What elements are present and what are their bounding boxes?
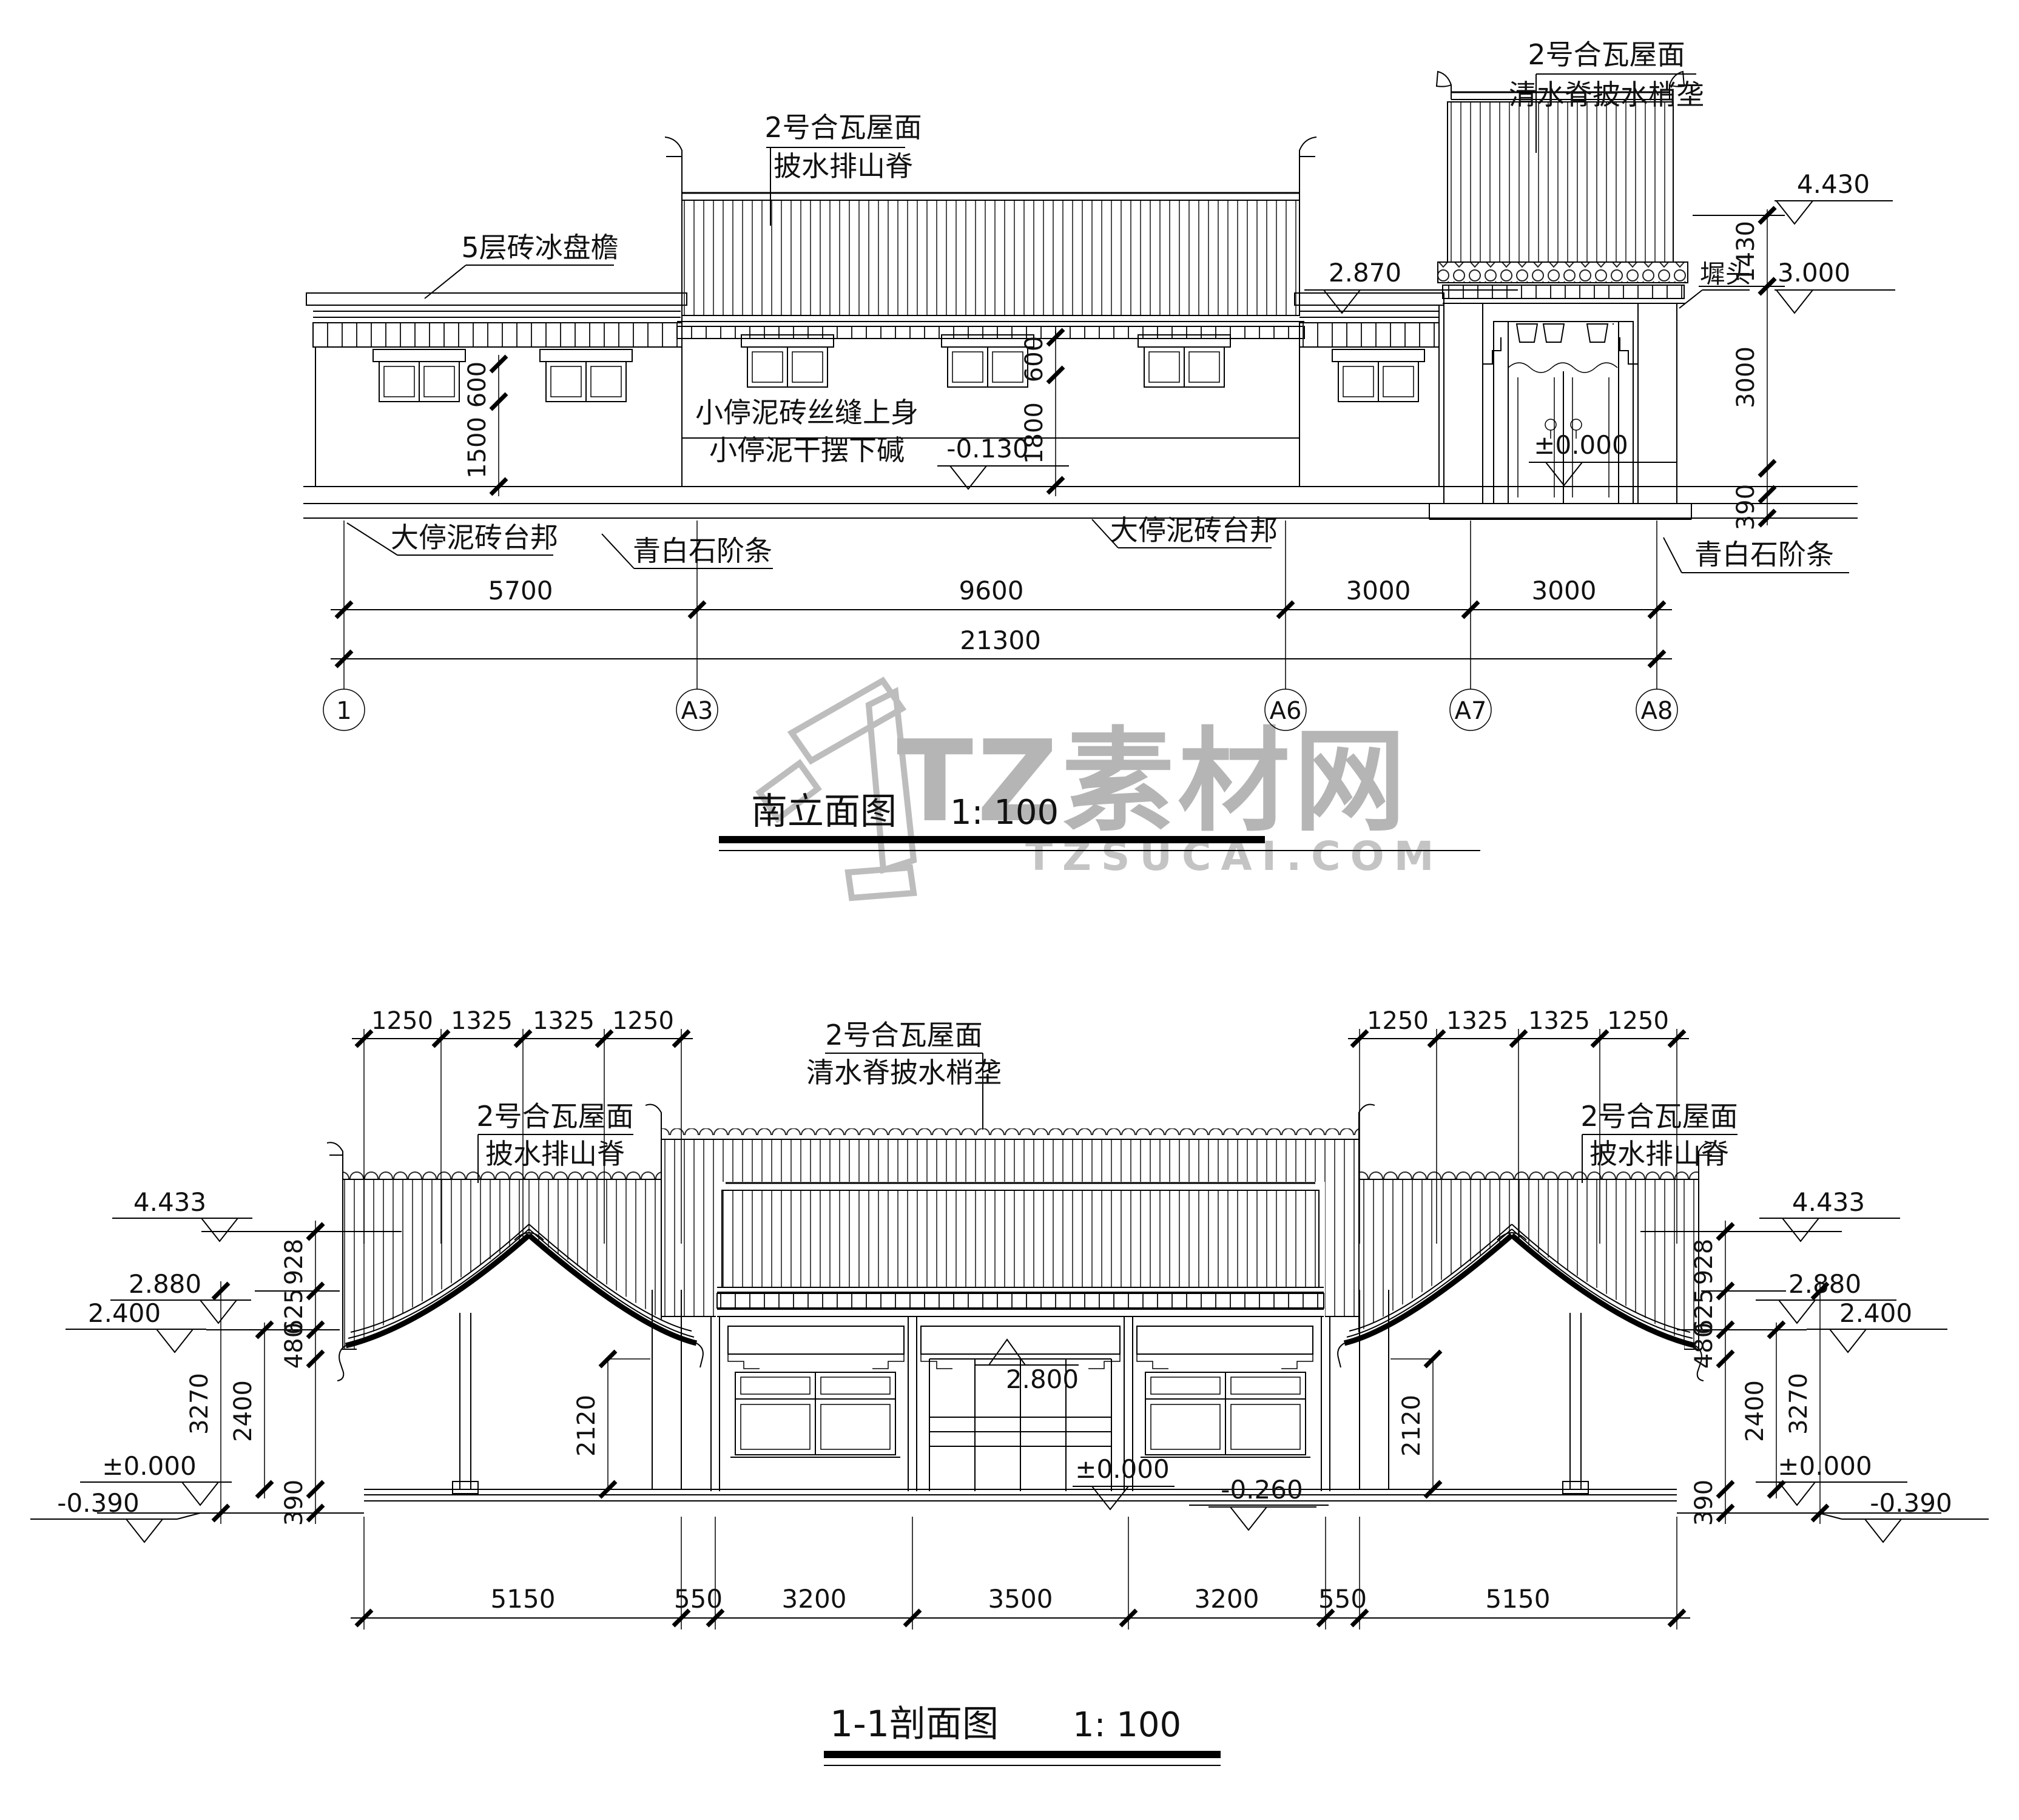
elevation-right-wall [1295, 293, 1444, 487]
dim-5700: 5700 [488, 576, 553, 605]
level-l-4433: 4.433 [133, 1187, 206, 1217]
section-center-hall [711, 1182, 1330, 1491]
cad-drawing-canvas: TZ素材网 TZSUCAI.COM 600 1500 [0, 0, 2019, 1820]
vdim-l-390: 390 [280, 1480, 308, 1526]
dim-tl-1250a: 1250 [371, 1007, 433, 1035]
dim-b-5150a: 5150 [491, 1584, 556, 1614]
label-wall-lower: 小停泥干摆下碱 [709, 434, 905, 467]
level-r-minus390: -0.390 [1870, 1488, 1952, 1518]
dim-b-3500: 3500 [988, 1584, 1053, 1614]
label-roof-center-line1: 2号合瓦屋面 [764, 111, 922, 144]
level-l-2400: 2.400 [88, 1298, 161, 1328]
vdim-l-3270: 3270 [186, 1373, 214, 1435]
dim-tr-1325b: 1325 [1528, 1007, 1590, 1035]
dim-tr-1250a: 1250 [1367, 1007, 1429, 1035]
level-c-zero: ±0.000 [1075, 1454, 1169, 1484]
dim-tr-1325a: 1325 [1446, 1007, 1508, 1035]
watermark: TZ素材网 TZSUCAI.COM [760, 681, 1443, 898]
vdim-mid-600: 600 [1020, 336, 1048, 382]
grid-bubble-1: 1 [336, 697, 351, 725]
section-title-block: 1-1剖面图 1: 100 [824, 1703, 1221, 1765]
section-bottom-dims: 5150 550 3200 3500 3200 550 5150 [351, 1517, 1690, 1630]
vdim-r-928: 928 [1690, 1239, 1718, 1285]
vdim-r-2400: 2400 [1741, 1380, 1769, 1442]
dim-3000-b: 3000 [1532, 576, 1597, 605]
dim-b-550b: 550 [1318, 1584, 1367, 1614]
grid-bubble-a3: A3 [681, 697, 713, 725]
level-l-2880: 2.880 [129, 1269, 201, 1299]
level-l-minus390: -0.390 [57, 1488, 139, 1518]
dim-tl-1325a: 1325 [451, 1007, 513, 1035]
vdim-l-480: 480 [280, 1323, 308, 1369]
vdim-win-600: 600 [463, 362, 491, 408]
vdim-r-480: 480 [1690, 1323, 1718, 1369]
dim-tl-1250b: 1250 [612, 1007, 674, 1035]
level-3000: 3.000 [1778, 258, 1850, 288]
vdim-r-3270: 3270 [1785, 1373, 1813, 1435]
vdim-r-390: 390 [1690, 1480, 1718, 1526]
dim-b-5150b: 5150 [1486, 1584, 1551, 1614]
section-left-vdims: 928 625 480 390 2400 3270 [186, 1221, 323, 1526]
label-stone-left: 青白石阶条 [633, 534, 772, 567]
label-platform-left: 大停泥砖台邦 [391, 521, 558, 554]
elevation-scale: 1: 100 [950, 793, 1059, 832]
elevation-left-wing: 600 1500 [306, 293, 687, 496]
vdim-390: 390 [1732, 484, 1760, 530]
label-stone-right: 青白石阶条 [1694, 538, 1834, 571]
vdim-wall-1500: 1500 [463, 417, 491, 479]
dim-3000-a: 3000 [1346, 576, 1411, 605]
dim-b-3200a: 3200 [782, 1584, 847, 1614]
label-platform-right: 大停泥砖台邦 [1110, 514, 1278, 547]
level-gate-zero: ±0.000 [1534, 430, 1628, 460]
label-roof-center-line2: 披水排山脊 [774, 150, 913, 183]
elevation-right-vdims: 1430 3000 390 [1732, 207, 1775, 530]
section-title: 1-1剖面图 [830, 1703, 999, 1745]
level-minus130: -0.130 [946, 434, 1028, 463]
elevation-title: 南立面图 [751, 790, 897, 833]
level-r-zero: ±0.000 [1778, 1451, 1872, 1481]
level-r-4433: 4.433 [1792, 1187, 1865, 1217]
label-sec-left-line2: 披水排山脊 [485, 1137, 625, 1170]
vdim-3000: 3000 [1732, 346, 1760, 408]
level-2870: 2.870 [1329, 258, 1401, 288]
level-l-zero: ±0.000 [102, 1451, 196, 1481]
label-sec-right-line1: 2号合瓦屋面 [1580, 1100, 1738, 1133]
label-sec-left-line1: 2号合瓦屋面 [476, 1100, 633, 1133]
section-scale: 1: 100 [1073, 1705, 1181, 1745]
label-roof-gate-line1: 2号合瓦屋面 [1528, 38, 1685, 71]
vdim-2120-right: 2120 [1398, 1395, 1426, 1457]
label-wall-upper: 小停泥砖丝缝上身 [695, 396, 918, 429]
dim-tl-1325b: 1325 [533, 1007, 595, 1035]
level-c-minus260: -0.260 [1221, 1475, 1303, 1505]
dim-b-550a: 550 [674, 1584, 723, 1614]
grid-bubble-a8: A8 [1641, 697, 1673, 725]
level-c-2800: 2.800 [1006, 1364, 1079, 1394]
vdim-l-2400: 2400 [229, 1380, 257, 1442]
label-cornice: 5层砖冰盘檐 [461, 231, 618, 264]
dim-9600: 9600 [959, 576, 1024, 605]
label-sec-center-line1: 2号合瓦屋面 [825, 1019, 982, 1051]
section-1-1: 2120 2120 [30, 1007, 1989, 1765]
level-4430: 4.430 [1797, 169, 1870, 199]
dim-b-3200b: 3200 [1195, 1584, 1259, 1614]
vdim-2120-left: 2120 [573, 1395, 601, 1457]
elevation-base-lines [303, 487, 1858, 518]
label-sec-center-line2: 清水脊披水梢垄 [806, 1056, 1002, 1089]
dim-tr-1250b: 1250 [1607, 1007, 1669, 1035]
vdim-1430: 1430 [1732, 221, 1760, 283]
grid-bubble-a6: A6 [1270, 697, 1302, 725]
vdim-l-928: 928 [280, 1239, 308, 1285]
level-r-2400: 2.400 [1839, 1298, 1912, 1328]
grid-bubble-a7: A7 [1455, 697, 1487, 725]
dim-total-21300: 21300 [960, 625, 1041, 655]
label-sec-right-line2: 披水排山脊 [1589, 1137, 1729, 1170]
label-roof-gate-line2: 清水脊披水梢垄 [1509, 78, 1704, 111]
